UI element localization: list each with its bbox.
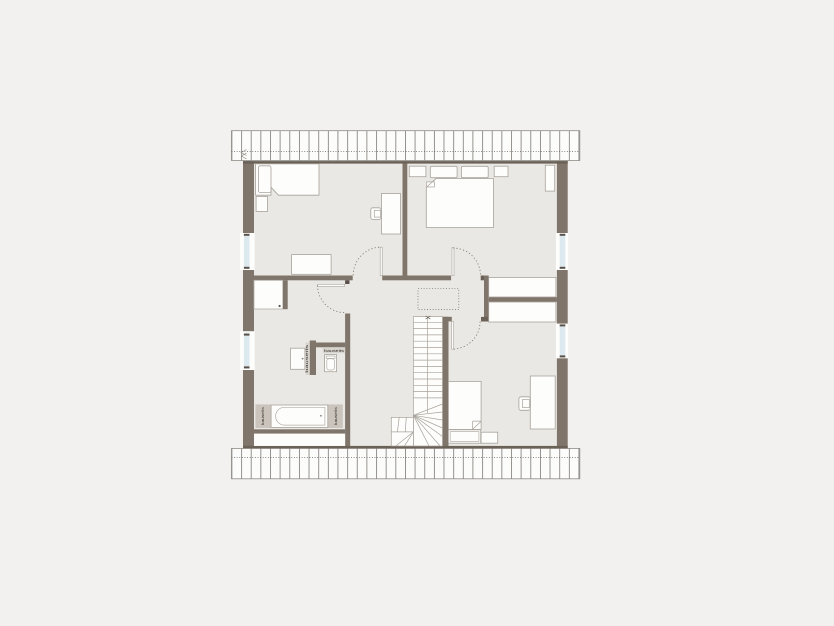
svg-text:bauseits: bauseits [324, 349, 344, 354]
svg-text:bauseits: bauseits [333, 407, 338, 425]
svg-text:bauseits: bauseits [260, 407, 265, 425]
